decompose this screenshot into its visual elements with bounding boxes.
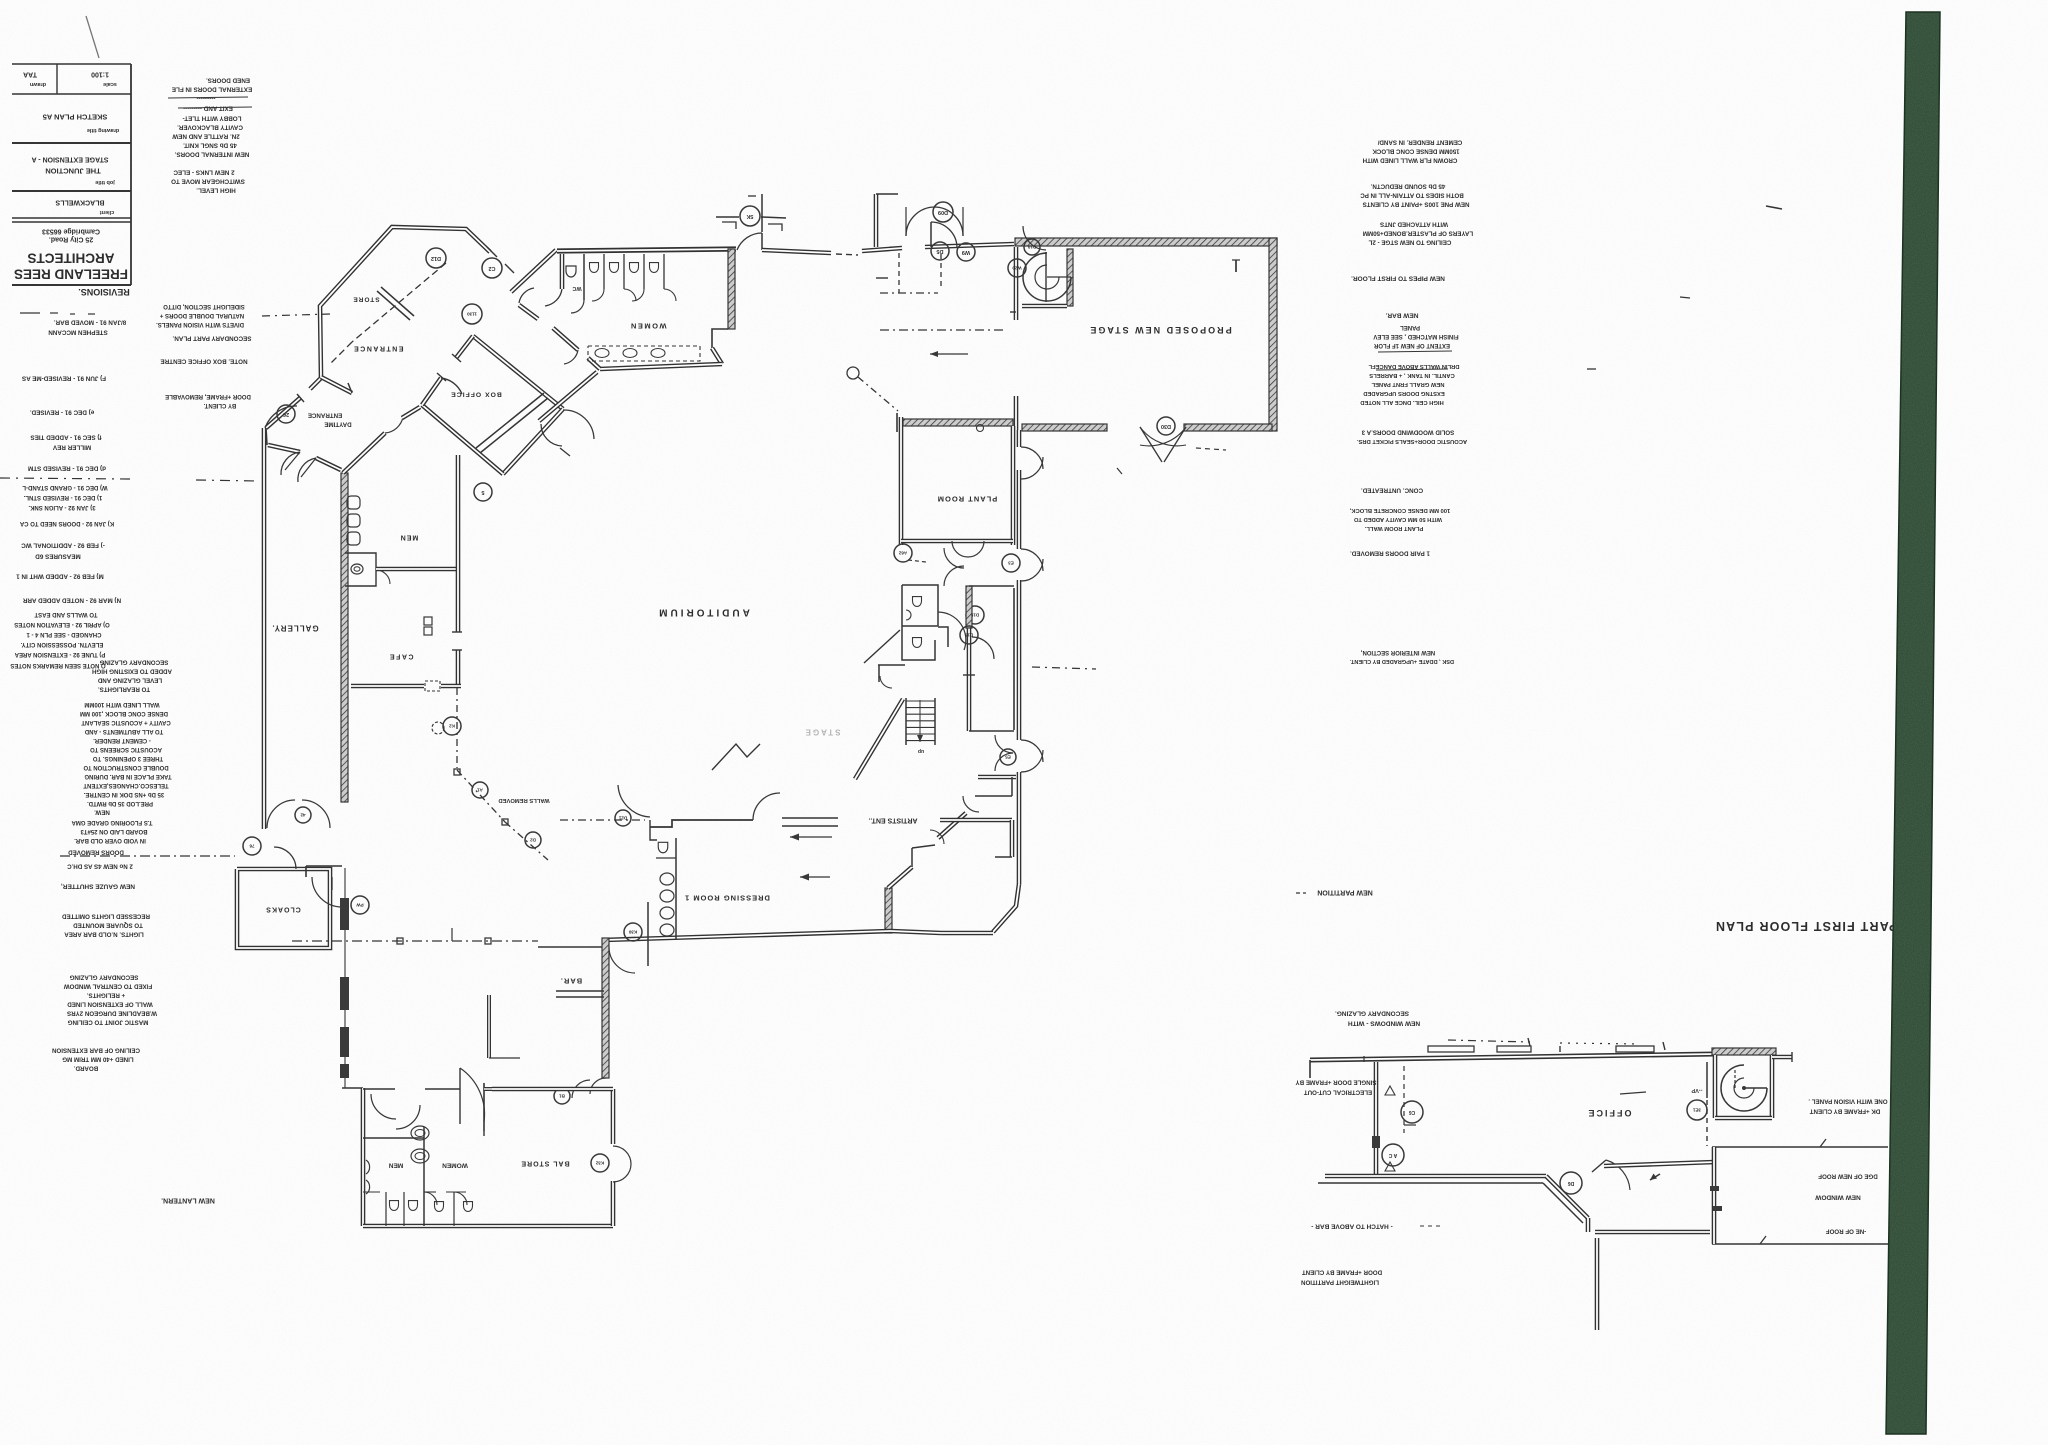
svg-text:REVISIONS.: REVISIONS.: [78, 287, 130, 297]
svg-text:PART FIRST FLOOR PLAN: PART FIRST FLOOR PLAN: [1715, 919, 1898, 933]
svg-text:ACOUSTIC SCREENS TO: ACOUSTIC SCREENS TO: [90, 746, 162, 752]
svg-text:--VP: --VP: [1691, 1087, 1702, 1093]
svg-text:ADDED TO EXISTING HIGH: ADDED TO EXISTING HIGH: [91, 668, 172, 675]
svg-text:OFFICE: OFFICE: [1587, 1108, 1632, 1118]
svg-text:DSK , DDATE +UPGRADED BY CLIE: DSK , DDATE +UPGRADED BY CLIENT.: [1350, 658, 1455, 664]
svg-text:- HATCH TO ABOVE BAR -: - HATCH TO ABOVE BAR -: [1311, 1223, 1393, 1230]
svg-text:ACOUSTIC DOOR+SEALS PICKET DR: ACOUSTIC DOOR+SEALS PICKET DRS.: [1356, 438, 1467, 444]
svg-text:STAGE: STAGE: [804, 728, 841, 737]
svg-text:f) SEC 91 - ADDED TIES: f) SEC 91 - ADDED TIES: [30, 434, 101, 441]
svg-text:MILLER REV: MILLER REV: [52, 444, 91, 451]
svg-text:NEW INTERIOR SECTION,: NEW INTERIOR SECTION,: [1361, 649, 1436, 655]
svg-text:K30: K30: [628, 930, 637, 935]
svg-text:up: up: [918, 748, 924, 754]
svg-text:PLANT ROOM WALL.: PLANT ROOM WALL.: [1364, 525, 1423, 531]
svg-text:WITH ATTACHED JNTS: WITH ATTACHED JNTS: [1380, 221, 1448, 228]
svg-text:+ RELIGHTS.: + RELIGHTS.: [87, 992, 126, 999]
svg-text:drawing title: drawing title: [87, 127, 119, 133]
svg-text:TO SQUARE MOUNTED: TO SQUARE MOUNTED: [73, 922, 143, 929]
svg-text:LAYERS OF PLASTER.BONED+50MM: LAYERS OF PLASTER.BONED+50MM: [1363, 230, 1473, 237]
svg-text:W.BEADLINE DURGEON 2YRS: W.BEADLINE DURGEON 2YRS: [67, 1010, 157, 1017]
svg-text:ELECTRICAL CUT-OUT: ELECTRICAL CUT-OUT: [1304, 1089, 1373, 1096]
svg-text:PRE.LOD 35 Db RWTD.: PRE.LOD 35 Db RWTD.: [87, 800, 153, 806]
svg-text:e) DEC 91 - REVISED.: e) DEC 91 - REVISED.: [30, 409, 95, 416]
svg-text:W20: W20: [1012, 266, 1022, 271]
svg-text:BAR.: BAR.: [560, 977, 582, 986]
svg-text:EXTENT OF NEW 1F FLOR: EXTENT OF NEW 1F FLOR: [1373, 342, 1450, 348]
svg-text:D5: D5: [936, 248, 943, 254]
svg-text:MEN: MEN: [400, 534, 419, 541]
svg-text:ENED DOORS.: ENED DOORS.: [206, 77, 250, 84]
svg-text:NEW GAUZE SHUTTER,: NEW GAUZE SHUTTER,: [61, 883, 135, 890]
svg-text:42: 42: [300, 813, 306, 818]
svg-text:GALLERY.: GALLERY.: [271, 624, 318, 633]
svg-text:NEW PNE 100S +PAINT BY CLIENT: NEW PNE 100S +PAINT BY CLIENTS: [1363, 201, 1470, 208]
svg-text:NEW WINDOW: NEW WINDOW: [1814, 1194, 1860, 1201]
svg-text:EXTERNAL DOORS IN FLE: EXTERNAL DOORS IN FLE: [172, 86, 252, 93]
svg-text:NEW LANTERN.: NEW LANTERN.: [161, 1197, 215, 1204]
svg-text:PLANT ROOM: PLANT ROOM: [937, 495, 997, 504]
svg-text:STORE: STORE: [352, 296, 379, 303]
svg-text:100 MM DENSE CONCRETE BLOCK,: 100 MM DENSE CONCRETE BLOCK,: [1349, 507, 1450, 513]
svg-text:TAKE PLACE IN BAR. DURING: TAKE PLACE IN BAR. DURING: [84, 773, 172, 779]
svg-text:D18: D18: [964, 633, 973, 638]
svg-text:A C: A C: [1388, 1152, 1397, 1158]
svg-text:FIXED TO CENTRAL WINDOW: FIXED TO CENTRAL WINDOW: [64, 983, 153, 990]
svg-text:BOARD.: BOARD.: [74, 1065, 99, 1072]
svg-text:THE JUNCTION: THE JUNCTION: [45, 167, 100, 176]
svg-text:MEASURES 6D: MEASURES 6D: [35, 553, 81, 560]
svg-text:D6: D6: [1568, 1180, 1575, 1186]
svg-text:client: client: [100, 209, 115, 215]
svg-text:NEW WINDOWS - WITH: NEW WINDOWS - WITH: [1348, 1020, 1421, 1027]
svg-text:TELESCO.CHANGES,EXTENT: TELESCO.CHANGES,EXTENT: [83, 782, 169, 788]
svg-text:35 Db +NS DOK IN CENTRE.: 35 Db +NS DOK IN CENTRE.: [83, 791, 164, 797]
svg-text:CEILING OF BAR EXTENSION: CEILING OF BAR EXTENSION: [51, 1047, 140, 1054]
svg-text:ENTRANCE: ENTRANCE: [308, 412, 342, 419]
svg-text:25 City Road.: 25 City Road.: [49, 236, 93, 243]
svg-text:45 Db SOUND REDUCTN.: 45 Db SOUND REDUCTN.: [1370, 183, 1445, 190]
svg-text:TO WALLS AND EAST: TO WALLS AND EAST: [34, 611, 97, 617]
svg-text:W9: W9: [962, 249, 970, 255]
svg-text:M) FEB 92 - ADDED WHT IN 1: M) FEB 92 - ADDED WHT IN 1: [16, 573, 104, 580]
svg-text:- CEMENT RENDER.: - CEMENT RENDER.: [93, 737, 151, 743]
svg-text:ONE WITH VISION PANEL .: ONE WITH VISION PANEL .: [1808, 1098, 1887, 1105]
svg-text:NEW BAR.: NEW BAR.: [1385, 312, 1418, 319]
svg-text:D09: D09: [938, 209, 948, 215]
svg-text:LEVEL GLAZING AND: LEVEL GLAZING AND: [97, 677, 162, 684]
svg-text:C6: C6: [1409, 1109, 1416, 1115]
svg-text:MASTIC JOINT TO CEILING: MASTIC JOINT TO CEILING: [67, 1019, 148, 1026]
svg-text:SECONDARY GLAZING: SECONDARY GLAZING: [99, 659, 168, 666]
svg-text:8/JAN 91 - MOVED BAR.: 8/JAN 91 - MOVED BAR.: [54, 319, 127, 326]
svg-text:A62: A62: [898, 551, 907, 556]
svg-text:CLOAKS: CLOAKS: [265, 906, 301, 913]
svg-text:SECONDARY GLAZING: SECONDARY GLAZING: [69, 974, 138, 981]
svg-text:BOARD LAID ON 25#T3: BOARD LAID ON 25#T3: [80, 828, 148, 834]
svg-text:WOMEN: WOMEN: [442, 1162, 468, 1169]
svg-text:5: 5: [481, 489, 484, 495]
svg-text:RECESSED LIGHTS OMITTED: RECESSED LIGHTS OMITTED: [61, 913, 150, 920]
svg-text:T.S FLOORING GRADE GMA: T.S FLOORING GRADE GMA: [71, 819, 153, 825]
svg-text:MEN: MEN: [388, 1162, 403, 1169]
svg-text:SKETCH PLAN A5: SKETCH PLAN A5: [43, 113, 108, 122]
svg-text:EXSTNG DOORS UPGRADED: EXSTNG DOORS UPGRADED: [1363, 390, 1445, 396]
svg-text:BOX OFFICE: BOX OFFICE: [450, 391, 502, 398]
svg-text:scale: scale: [103, 81, 117, 87]
svg-text:A1: A1: [477, 788, 483, 793]
svg-text:ENTRANCE: ENTRANCE: [353, 345, 404, 352]
svg-text:SK: SK: [746, 213, 753, 219]
svg-text:NATURAL DOUBLE DOORS +: NATURAL DOUBLE DOORS +: [159, 312, 244, 318]
svg-text:DOORS REMOVED: DOORS REMOVED: [68, 849, 124, 856]
svg-text:PW: PW: [356, 903, 364, 908]
svg-text:NEW GRALL FRNT PANEL: NEW GRALL FRNT PANEL: [1371, 381, 1444, 387]
svg-text:LIGHTWEIGHT PARTITION: LIGHTWEIGHT PARTITION: [1301, 1279, 1379, 1286]
svg-text:THREE 3 OPENINGS. TO: THREE 3 OPENINGS. TO: [93, 755, 164, 761]
svg-text:3) JAN 92 - ALIGN SNK.: 3) JAN 92 - ALIGN SNK.: [28, 504, 95, 510]
svg-text:PANEL: PANEL: [1400, 324, 1420, 330]
svg-text:ARCHITECTS: ARCHITECTS: [28, 251, 115, 266]
svg-text:WALL LINED WITH 100MM: WALL LINED WITH 100MM: [84, 701, 159, 707]
svg-text:SIDELIGHT SECTION, DITTO: SIDELIGHT SECTION, DITTO: [163, 303, 245, 309]
svg-text:WITH 50 MM CAVITY ADDED TO: WITH 50 MM CAVITY ADDED TO: [1353, 516, 1442, 522]
svg-text:CHANGED - SEE PLN 4 - 1: CHANGED - SEE PLN 4 - 1: [26, 631, 102, 637]
svg-text:NEW PIPES TO FIRST FLOOR.: NEW PIPES TO FIRST FLOOR.: [1351, 275, 1445, 282]
svg-text:STAGE EXTENSION - A: STAGE EXTENSION - A: [31, 156, 108, 163]
svg-text:d) DEC 91 - REVISED STM: d) DEC 91 - REVISED STM: [28, 465, 106, 472]
svg-text:BOTH SIDES TO ATTAIN-ALL IN PC: BOTH SIDES TO ATTAIN-ALL IN PC: [1360, 192, 1464, 199]
svg-text:E5: E5: [1005, 755, 1011, 760]
svg-text:CROWN FLR WALL LINED WITH: CROWN FLR WALL LINED WITH: [1362, 157, 1457, 164]
svg-text:drawn: drawn: [29, 81, 46, 87]
svg-text:LIGHTS. N.OLD BAR AREA: LIGHTS. N.OLD BAR AREA: [64, 931, 144, 938]
svg-text:Cambridge 66533: Cambridge 66533: [42, 228, 100, 235]
svg-text:O) APRIL 92 - ELEVATION NOTE: O) APRIL 92 - ELEVATION NOTES: [14, 621, 109, 627]
svg-text:1130: 1130: [467, 312, 477, 317]
svg-text:DRLIN WALLS ABOVE DANCEFL: DRLIN WALLS ABOVE DANCEFL: [1368, 363, 1459, 369]
svg-text:W) DEC 91 - GRAND STAND-L: W) DEC 91 - GRAND STAND-L: [22, 484, 108, 490]
svg-text:76: 76: [249, 844, 255, 849]
svg-text:job title: job title: [95, 179, 116, 185]
svg-text:CEMENT RENDER. IN SAND/: CEMENT RENDER. IN SAND/: [1377, 139, 1462, 146]
svg-text:SOLID WOODWIND DOORS.A 3: SOLID WOODWIND DOORS.A 3: [1361, 429, 1454, 436]
svg-text:P) TUNE 92 - EXTENSION AREA: P) TUNE 92 - EXTENSION AREA: [14, 651, 105, 657]
svg-text:45 Db SNGL KNIT.: 45 Db SNGL KNIT.: [183, 142, 237, 149]
svg-text:HIGH CEIL. DNCE ALL NOTED: HIGH CEIL. DNCE ALL NOTED: [1360, 399, 1443, 405]
svg-text:3E1: 3E1: [1693, 1108, 1702, 1113]
svg-text:DRESSING ROOM 1: DRESSING ROOM 1: [684, 894, 770, 903]
svg-text:LOBBY WITH TLET-: LOBBY WITH TLET-: [183, 115, 242, 122]
svg-text:NOTE. BOX OFFICE CENTRE: NOTE. BOX OFFICE CENTRE: [160, 358, 247, 365]
svg-text:SECONDARY PART PLAN.: SECONDARY PART PLAN.: [172, 335, 251, 342]
svg-text:N) MAR 92 - NOTED ADDED ARR: N) MAR 92 - NOTED ADDED ARR: [22, 597, 121, 604]
svg-text:WOMEN: WOMEN: [629, 322, 666, 331]
svg-text:B1: B1: [559, 1094, 565, 1099]
svg-text:DIVETS WITH VISION PANELS.: DIVETS WITH VISION PANELS.: [156, 321, 244, 327]
svg-text:WC: WC: [572, 285, 581, 291]
svg-text:SINGLE DOOR +FRAME BY: SINGLE DOOR +FRAME BY: [1295, 1079, 1377, 1086]
svg-text:IN VOID OVER OLD BAR.: IN VOID OVER OLD BAR.: [74, 837, 146, 843]
svg-text:K2: K2: [449, 724, 455, 729]
svg-text:DOOR +FRAME BY CLIENT: DOOR +FRAME BY CLIENT: [1302, 1269, 1382, 1276]
svg-text:WALLS REMOVED: WALLS REMOVED: [498, 797, 549, 803]
svg-text:-NE OF ROOF: -NE OF ROOF: [1826, 1228, 1867, 1235]
svg-text:BY CLIENT.: BY CLIENT.: [203, 402, 236, 408]
svg-text:CAFE: CAFE: [388, 653, 413, 660]
svg-text:-) FEB 92 - ADDITIONAL WC: -) FEB 92 - ADDITIONAL WC: [21, 542, 105, 549]
svg-text:CAVITY + ACOUSTIC SEALANT: CAVITY + ACOUSTIC SEALANT: [81, 719, 171, 725]
svg-text:TO ALL ABUTMENTS - AND: TO ALL ABUTMENTS - AND: [84, 728, 163, 734]
svg-text:1) DEC 91 - REVISED STNL.: 1) DEC 91 - REVISED STNL.: [23, 494, 102, 500]
svg-text:D21: D21: [618, 816, 627, 821]
svg-text:CANTIL. IN TANK , + BARRELS: CANTIL. IN TANK , + BARRELS: [1369, 372, 1455, 378]
svg-text:C2: C2: [488, 265, 495, 271]
svg-text:PROPOSED NEW STAGE: PROPOSED NEW STAGE: [1088, 325, 1231, 335]
svg-text:F) JUN 91 - REVISED-ME AS: F) JUN 91 - REVISED-ME AS: [22, 375, 106, 382]
svg-text:HIGH LEVEL.: HIGH LEVEL.: [196, 187, 236, 194]
svg-text:CONC. UNTREATED.: CONC. UNTREATED.: [1361, 487, 1423, 494]
svg-text:SWITCHGEAR MOVE TO: SWITCHGEAR MOVE TO: [171, 178, 245, 185]
svg-text:AUDITORIUM: AUDITORIUM: [656, 607, 750, 618]
svg-text:TO REARLIGHTS.: TO REARLIGHTS.: [98, 686, 150, 693]
svg-text:ARTISTS ENT..: ARTISTS ENT..: [868, 817, 917, 824]
svg-text:D2: D2: [530, 838, 536, 843]
svg-text:E3: E3: [1008, 561, 1014, 566]
svg-text:2 No NEW 4S AS DH.C: 2 No NEW 4S AS DH.C: [67, 863, 133, 870]
svg-text:1:100: 1:100: [91, 71, 109, 78]
svg-text:D12: D12: [431, 255, 441, 261]
svg-text:ELEVTN. POSSESSION CITY.: ELEVTN. POSSESSION CITY.: [20, 641, 103, 647]
svg-text:BLACKWELLS: BLACKWELLS: [55, 199, 104, 206]
svg-text:WALL OF EXTENSION LINED: WALL OF EXTENSION LINED: [67, 1001, 153, 1008]
svg-text:2N. RATTLE AND NEW: 2N. RATTLE AND NEW: [172, 133, 240, 140]
svg-text:FINISH MATCHED , SEE ELEV: FINISH MATCHED , SEE ELEV: [1373, 333, 1458, 339]
svg-text:2 NEW LNKS - ELEC: 2 NEW LNKS - ELEC: [173, 169, 235, 176]
svg-text:DGE OF NEW ROOF: DGE OF NEW ROOF: [1818, 1173, 1878, 1180]
svg-text:NEW INTERNAL DOORS.: NEW INTERNAL DOORS.: [174, 151, 249, 158]
svg-text:BAL STORE: BAL STORE: [520, 1160, 569, 1167]
svg-text:DOOR +FRAME, REMOVABLE: DOOR +FRAME, REMOVABLE: [165, 393, 251, 399]
svg-text:DK +FRAME BY CLIENT: DK +FRAME BY CLIENT: [1810, 1108, 1881, 1115]
svg-text:K32: K32: [595, 1161, 604, 1166]
svg-text:NEW PARTITION: NEW PARTITION: [1317, 889, 1372, 896]
svg-text:DENSE CONC BLOCK ,100 MM: DENSE CONC BLOCK ,100 MM: [80, 710, 168, 716]
svg-text:CEILING TO NEW STGE - 2L: CEILING TO NEW STGE - 2L: [1368, 239, 1451, 246]
svg-text:STEPHEN MCCANN: STEPHEN MCCANN: [48, 329, 108, 336]
svg-text:CAVITY BLACKOVER.: CAVITY BLACKOVER.: [177, 124, 243, 131]
svg-text:NEW.: NEW.: [94, 809, 110, 816]
svg-text:Q NOTE SEEN REMARKS NOTES: Q NOTE SEEN REMARKS NOTES: [10, 662, 105, 668]
svg-text:150MM DENSE CONC BLOCK: 150MM DENSE CONC BLOCK: [1372, 148, 1460, 155]
svg-text:DOUBLE CONSTRUCTION TO: DOUBLE CONSTRUCTION TO: [83, 764, 169, 770]
svg-text:LINED +40 MM TRIM MG: LINED +40 MM TRIM MG: [62, 1056, 134, 1063]
svg-text:1 PAIR DOORS REMOVED.: 1 PAIR DOORS REMOVED.: [1350, 550, 1430, 557]
svg-text:FREELAND REES: FREELAND REES: [14, 267, 128, 282]
svg-text:DAYTIME: DAYTIME: [324, 421, 351, 428]
svg-text:K) JAN 92 - DOORS NEED TO CA: K) JAN 92 - DOORS NEED TO CA: [19, 520, 114, 526]
svg-text:TAA: TAA: [23, 71, 37, 78]
svg-text:26: 26: [283, 411, 289, 417]
svg-text:D30: D30: [1161, 423, 1171, 429]
svg-text:SECONDARY GLAZING.: SECONDARY GLAZING.: [1335, 1010, 1409, 1017]
